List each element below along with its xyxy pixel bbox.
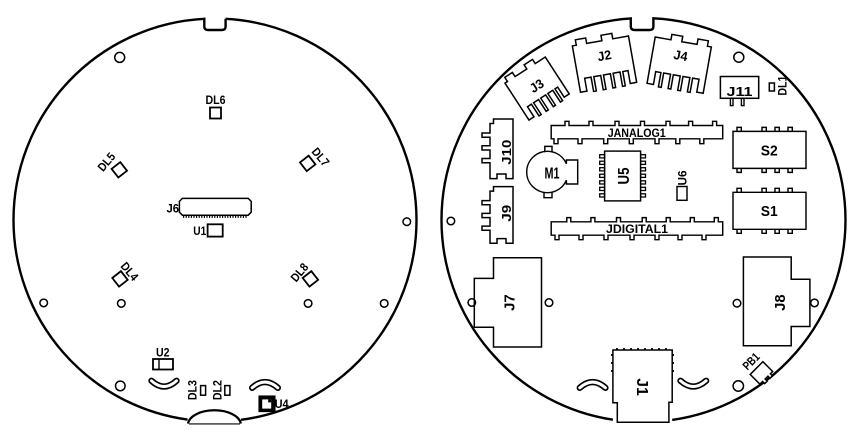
svg-text:J6: J6 bbox=[167, 201, 180, 215]
svg-text:DL1: DL1 bbox=[775, 75, 789, 95]
svg-text:DL6: DL6 bbox=[206, 93, 226, 107]
svg-text:J1: J1 bbox=[633, 378, 650, 396]
svg-text:M1: M1 bbox=[545, 165, 560, 182]
svg-text:J8: J8 bbox=[772, 294, 789, 311]
svg-text:S2: S2 bbox=[761, 143, 778, 160]
svg-text:U5: U5 bbox=[616, 167, 633, 184]
svg-text:U4: U4 bbox=[275, 397, 289, 411]
svg-text:J7: J7 bbox=[502, 294, 519, 311]
svg-text:J11: J11 bbox=[727, 84, 753, 99]
svg-text:J9: J9 bbox=[499, 205, 514, 222]
svg-text:U6: U6 bbox=[676, 170, 690, 185]
svg-text:DL2: DL2 bbox=[210, 380, 224, 400]
svg-text:DL3: DL3 bbox=[186, 380, 200, 400]
svg-text:U1: U1 bbox=[193, 224, 206, 238]
svg-text:JANALOG1: JANALOG1 bbox=[608, 126, 666, 140]
svg-text:JDIGITAL1: JDIGITAL1 bbox=[606, 222, 668, 236]
svg-text:U2: U2 bbox=[156, 345, 170, 359]
svg-text:J10: J10 bbox=[499, 140, 514, 165]
svg-text:S1: S1 bbox=[761, 203, 778, 220]
svg-text:J2: J2 bbox=[596, 47, 612, 64]
